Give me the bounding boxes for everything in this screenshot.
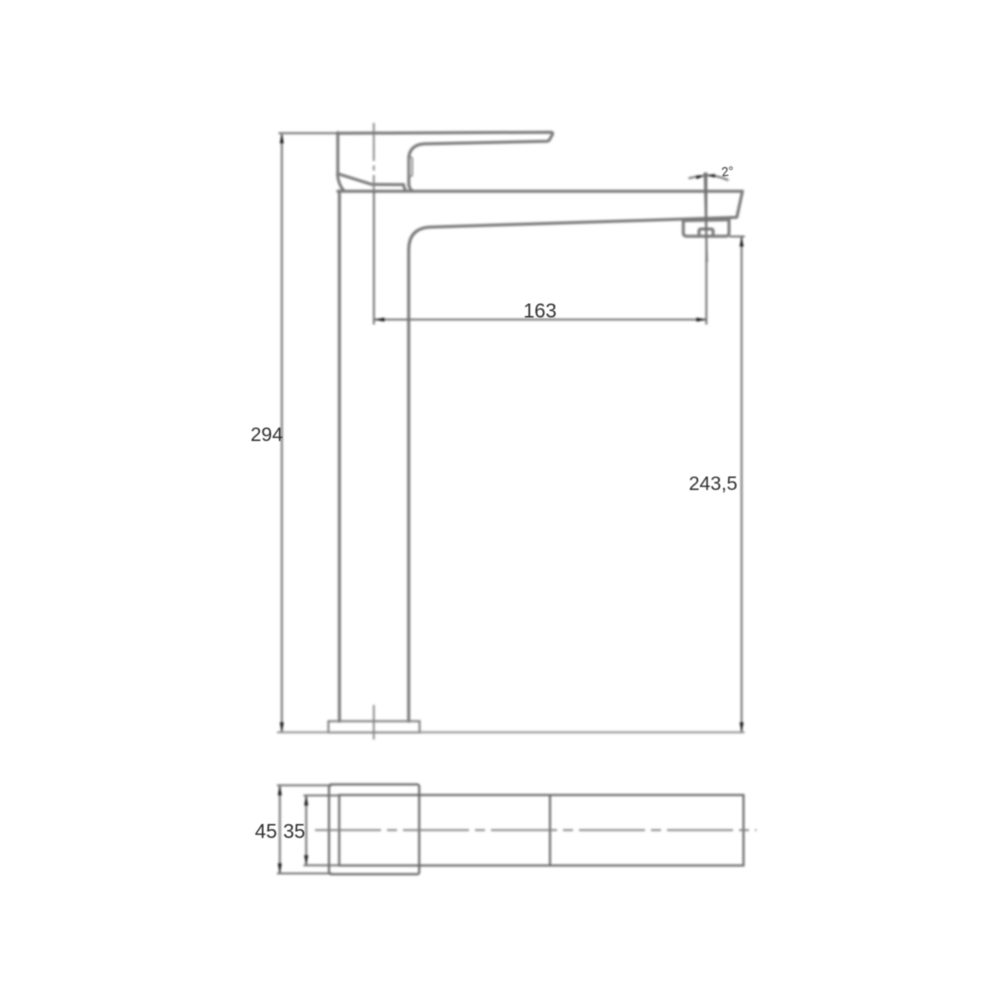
svg-text:243,5: 243,5 [689,473,738,495]
svg-text:45: 45 [255,821,277,843]
svg-text:35: 35 [283,821,305,843]
svg-text:163: 163 [523,301,556,323]
svg-text:2°: 2° [721,163,735,179]
svg-text:294: 294 [250,424,283,446]
